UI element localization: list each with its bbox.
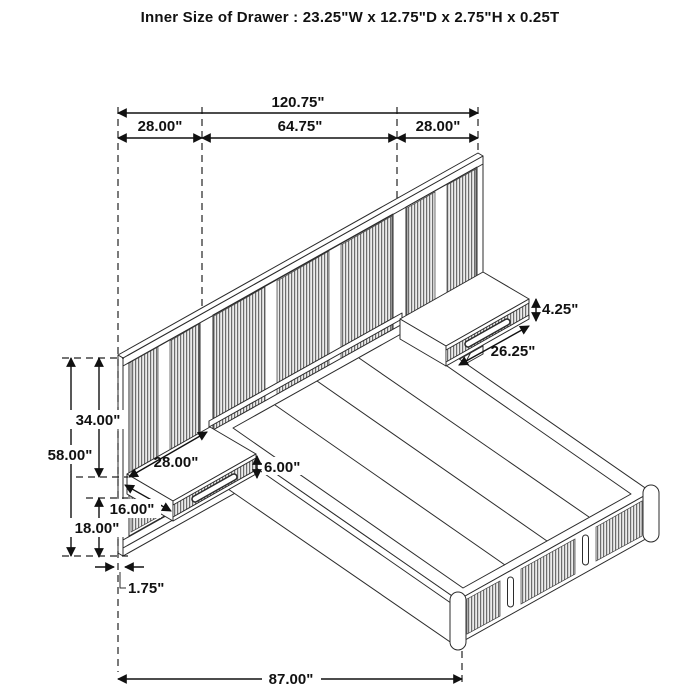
footboard-handle: [508, 577, 514, 607]
dim-overall-width: 120.75": [118, 94, 478, 113]
dim-label-right-panel-width: 28.00": [416, 118, 461, 135]
dim-label-panel-thickness: 1.75": [128, 580, 164, 597]
dim-label-nightstand-to-floor: 18.00": [75, 520, 120, 537]
corner-post: [643, 485, 659, 542]
dim-label-left-nightstand-depth: 16.00": [110, 501, 155, 518]
dim-label-center-panel-width: 64.75": [278, 118, 323, 135]
dim-right-panel-width: 28.00": [397, 118, 478, 138]
dim-left-panel-width: 28.00": [118, 118, 202, 138]
dim-bed-length: 87.00": [118, 669, 462, 689]
dim-right-nightstand-height: 4.25": [536, 299, 578, 321]
dim-label-overall-width: 120.75": [272, 94, 325, 111]
dim-label-panel-height: 58.00": [48, 447, 93, 464]
dim-center-panel-width: 64.75": [202, 118, 397, 138]
dim-label-bed-length: 87.00": [269, 671, 314, 688]
technical-drawing: 120.75" 28.00" 64.75" 28.00" 58.00" 34.0…: [0, 0, 700, 700]
dim-label-right-nightstand-width: 26.25": [491, 343, 536, 360]
footboard-handle: [583, 535, 589, 565]
dim-left-nightstand-height: 6.00": [257, 456, 308, 478]
corner-post: [450, 592, 466, 650]
dim-label-right-nightstand-height: 4.25": [542, 301, 578, 318]
dim-label-left-nightstand-height: 6.00": [264, 459, 300, 476]
dim-label-left-nightstand-width: 28.00": [154, 454, 199, 471]
dim-panel-thickness: 1.75": [95, 567, 164, 597]
dim-label-left-panel-width: 28.00": [138, 118, 183, 135]
dim-label-top-to-nightstand: 34.00": [76, 412, 121, 429]
